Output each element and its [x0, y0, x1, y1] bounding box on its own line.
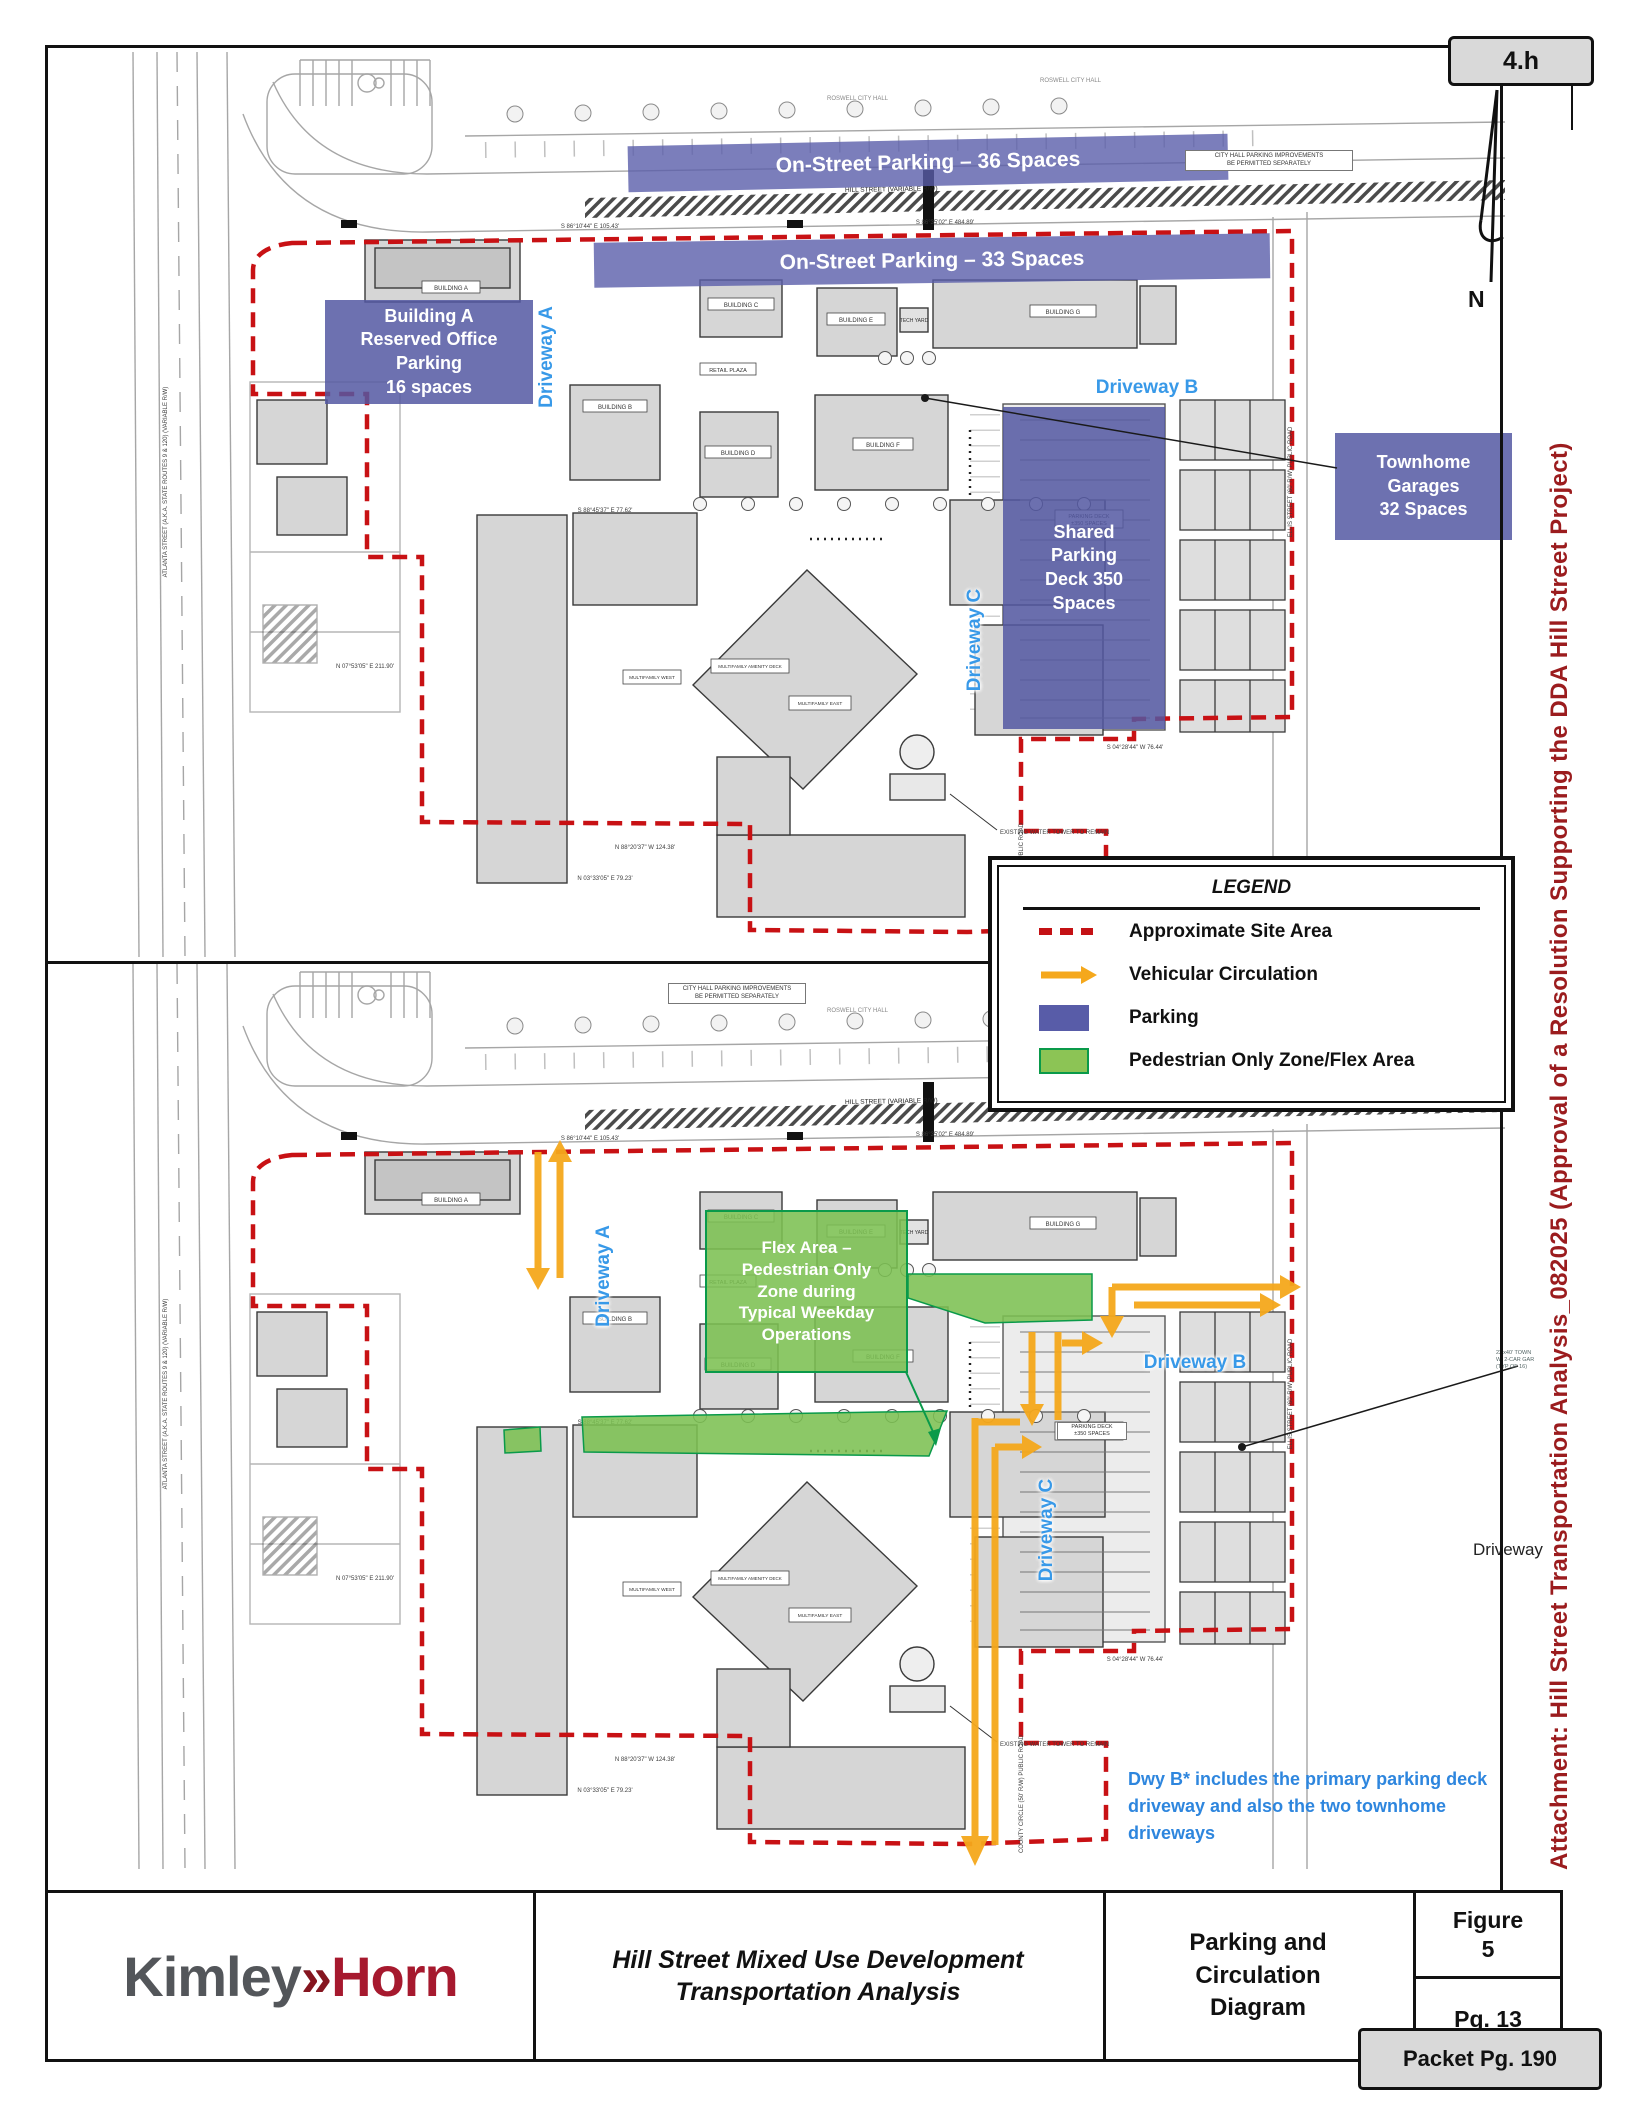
- building-e-label: BUILDING E: [839, 318, 873, 324]
- building-d-label: BUILDING D: [721, 451, 756, 457]
- building-g-label: BUILDING G: [1046, 1222, 1081, 1228]
- legend-item-site-area: Approximate Site Area: [1017, 910, 1486, 953]
- driveway-a-label-top: Driveway A: [536, 297, 560, 417]
- retail-plaza-label: RETAIL PLAZA: [709, 368, 747, 374]
- legend-item-pedestrian: Pedestrian Only Zone/Flex Area: [1017, 1039, 1486, 1082]
- attachment-sidebar-note: Attachment: Hill Street Transportation A…: [1546, 240, 1586, 1870]
- bearing-3: S 88°45'37" E 77.62': [578, 1420, 633, 1426]
- mf-east-label: MULTIFAMILY EAST: [798, 1613, 843, 1619]
- building-a-line1: Building A: [384, 305, 473, 329]
- flex-line2: Pedestrian Only: [742, 1259, 871, 1281]
- onstreet-parking-33-label: On-Street Parking – 33 Spaces: [780, 246, 1085, 274]
- ellis-street-label: ELLIS STREET (60' R/W) PUBLIC ROAD: [1288, 426, 1294, 537]
- dwy-b-note-line1: Dwy B* includes the primary parking deck: [1128, 1766, 1549, 1793]
- atlanta-street-label: ATLANTA STREET (A.K.A. STATE ROUTES 9 & …: [163, 1299, 169, 1490]
- city-hall-note-line2: BE PERMITTED SEPARATELY: [671, 994, 803, 1002]
- legend-title: LEGEND: [1023, 877, 1480, 910]
- red-dashed-line-icon: [1039, 928, 1101, 935]
- legend-label-site-area: Approximate Site Area: [1129, 921, 1332, 943]
- bearing-1: S 86°10'44" E 105.43': [561, 224, 619, 230]
- sheet-title-line2: Circulation: [1195, 1960, 1320, 1992]
- packet-page-badge: Packet Pg. 190: [1358, 2028, 1602, 2090]
- city-hall-note-line1: CITY HALL PARKING IMPROVEMENTS: [671, 986, 803, 994]
- dwy-b-note-line2: driveway and also the two townhome: [1128, 1793, 1549, 1820]
- bearing-2: S 86°35'02" E 484.89': [916, 220, 974, 226]
- onstreet-parking-33-banner: On-Street Parking – 33 Spaces: [594, 233, 1271, 287]
- legend-inner-border: LEGEND Approximate Site Area Vehicular C…: [997, 865, 1506, 1103]
- panel-divider: [45, 961, 988, 964]
- project-title-line1: Hill Street Mixed Use Development: [612, 1944, 1023, 1977]
- deck-line3: Deck 350: [1045, 568, 1123, 592]
- logo-kimley: Kimley: [123, 1945, 301, 2008]
- bearing-4: N 07°53'05" E 211.90': [336, 664, 394, 670]
- driveway-partial-label: Driveway: [1473, 1540, 1543, 1560]
- flex-line4: Typical Weekday: [739, 1302, 874, 1324]
- townhome-line3: 32 Spaces: [1379, 498, 1467, 522]
- townhome-garage-rows: [1180, 400, 1285, 732]
- parking-deck-tinybox-bottom: PARKING DECK ±350 SPACES: [1057, 1422, 1127, 1440]
- street-trees: [507, 1010, 1067, 1034]
- title-block: Kimley»Horn Hill Street Mixed Use Develo…: [45, 1890, 1563, 2062]
- bearing-6: N 03°33'05" E 79.23': [577, 876, 632, 882]
- mf-amenity-label: MULTIFAMILY AMENITY DECK: [718, 664, 781, 669]
- building-a-line2: Reserved Office: [360, 328, 497, 352]
- mf-west-label: MULTIFAMILY WEST: [629, 1587, 675, 1593]
- deck-line2: Parking: [1051, 544, 1117, 568]
- frame-top: [45, 45, 1502, 48]
- deck-line1: Shared: [1053, 521, 1114, 545]
- dwy-b-note: Dwy B* includes the primary parking deck…: [1128, 1766, 1549, 1847]
- mf-east-label: MULTIFAMILY EAST: [798, 701, 843, 707]
- roswell-city-hall-1: ROSWELL CITY HALL: [827, 96, 889, 102]
- deck-tiny-1: PARKING DECK: [1059, 1424, 1125, 1431]
- bearing-6: N 03°33'05" E 79.23': [577, 1788, 632, 1794]
- townhome-line2: Garages: [1387, 475, 1459, 499]
- frame-left: [45, 45, 48, 2062]
- logo-horn: Horn: [331, 1945, 458, 2008]
- agenda-item-tag: 4.h: [1448, 36, 1594, 86]
- flex-line5: Operations: [762, 1324, 852, 1346]
- water-tower-note: EXISTING WATER TOWER TO REMAIN: [1000, 1742, 1109, 1748]
- packet-page: BUILDING A BUILDING C BUILDING B BUILDIN…: [0, 0, 1632, 2112]
- green-swatch-icon: [1039, 1048, 1101, 1074]
- driveway-b-label-bottom: Driveway B: [1135, 1352, 1255, 1374]
- bearing-7: S 04°28'44" W 76.44': [1107, 1657, 1164, 1663]
- driveway-a-label-bottom: Driveway A: [593, 1216, 617, 1336]
- mf-west-label: MULTIFAMILY WEST: [629, 675, 675, 681]
- flex-area-box: Flex Area – Pedestrian Only Zone during …: [705, 1210, 908, 1373]
- water-tower-note: EXISTING WATER TOWER TO REMAIN: [1000, 830, 1109, 836]
- bearing-4: N 07°53'05" E 211.90': [336, 1576, 394, 1582]
- bearing-1: S 86°10'44" E 105.43': [561, 1136, 619, 1142]
- deck-line4: Spaces: [1052, 592, 1115, 616]
- sheet-title-line3: Diagram: [1210, 1992, 1306, 2024]
- figure-number: 5: [1482, 1935, 1495, 1964]
- townhome-garages-box: Townhome Garages 32 Spaces: [1335, 433, 1512, 540]
- figure-cell: Figure 5: [1413, 1893, 1563, 1976]
- legend-label-parking: Parking: [1129, 1007, 1199, 1029]
- building-a-label: BUILDING A: [434, 286, 468, 292]
- building-g-label: BUILDING G: [1046, 310, 1081, 316]
- mf-amenity-label: MULTIFAMILY AMENITY DECK: [718, 1576, 781, 1581]
- project-title-cell: Hill Street Mixed Use Development Transp…: [533, 1893, 1103, 2059]
- building-f-label: BUILDING F: [866, 443, 900, 449]
- onstreet-parking-36-label: On-Street Parking – 36 Spaces: [775, 148, 1080, 178]
- legend-box: LEGEND Approximate Site Area Vehicular C…: [988, 856, 1515, 1112]
- city-hall-note-bottom: CITY HALL PARKING IMPROVEMENTS BE PERMIT…: [668, 983, 806, 1004]
- logo-cell: Kimley»Horn: [48, 1893, 533, 2059]
- flex-line3: Zone during: [757, 1281, 855, 1303]
- county-circle-label: COUNTY CIRCLE (50' R/W) PUBLIC ROAD: [1019, 1734, 1025, 1853]
- ellis-street-label: ELLIS STREET (60' R/W) PUBLIC ROAD: [1288, 1338, 1294, 1449]
- legend-label-pedestrian: Pedestrian Only Zone/Flex Area: [1129, 1050, 1414, 1072]
- bearing-5: N 88°20'37" W 124.38': [615, 845, 675, 851]
- building-a-label: BUILDING A: [434, 1198, 468, 1204]
- roswell-city-hall-1: ROSWELL CITY HALL: [827, 1008, 889, 1014]
- townhome-line1: Townhome: [1377, 451, 1471, 475]
- deck-tiny-2: ±350 SPACES: [1059, 1431, 1125, 1438]
- bearing-2: S 86°35'02" E 484.89': [916, 1132, 974, 1138]
- blue-swatch-icon: [1039, 1005, 1101, 1031]
- shared-parking-deck-box: Shared Parking Deck 350 Spaces: [1003, 407, 1165, 729]
- building-a-line4: 16 spaces: [386, 376, 472, 400]
- bearing-7: S 04°28'44" W 76.44': [1107, 745, 1164, 751]
- street-trees: [507, 98, 1067, 122]
- flex-line1: Flex Area –: [761, 1237, 851, 1259]
- roswell-city-hall-2: ROSWELL CITY HALL: [1040, 78, 1102, 84]
- dwy-b-note-line3: driveways: [1128, 1820, 1549, 1847]
- driveway-c-label-bottom: Driveway C: [1036, 1470, 1060, 1590]
- sheet-title-line1: Parking and: [1189, 1927, 1326, 1959]
- building-a-parking-box: Building A Reserved Office Parking 16 sp…: [325, 300, 533, 404]
- yellow-arrow-icon: [1039, 964, 1101, 986]
- bearing-3: S 88°45'37" E 77.62': [578, 508, 633, 514]
- driveway-c-label-top: Driveway C: [964, 580, 988, 700]
- driveway-b-label-top: Driveway B: [1087, 377, 1207, 399]
- tech-yard-label: TECH YARD: [900, 318, 929, 324]
- project-title-line2: Transportation Analysis: [676, 1976, 961, 2009]
- city-hall-note-top: CITY HALL PARKING IMPROVEMENTS BE PERMIT…: [1185, 150, 1353, 171]
- bearing-5: N 88°20'37" W 124.38': [615, 1757, 675, 1763]
- legend-label-circulation: Vehicular Circulation: [1129, 964, 1318, 986]
- legend-item-parking: Parking: [1017, 996, 1486, 1039]
- north-label: N: [1468, 286, 1485, 313]
- logo-chevron-icon: »: [301, 1945, 331, 2008]
- kimley-horn-logo: Kimley»Horn: [123, 1944, 457, 2009]
- city-hall-note-line2: BE PERMITTED SEPARATELY: [1188, 161, 1350, 169]
- legend-item-circulation: Vehicular Circulation: [1017, 953, 1486, 996]
- figure-label: Figure: [1453, 1906, 1523, 1935]
- city-hall-note-line1: CITY HALL PARKING IMPROVEMENTS: [1188, 153, 1350, 161]
- building-c-label: BUILDING C: [724, 303, 759, 309]
- atlanta-street-label: ATLANTA STREET (A.K.A. STATE ROUTES 9 & …: [163, 387, 169, 578]
- building-a-line3: Parking: [396, 352, 462, 376]
- building-b-label: BUILDING B: [598, 405, 632, 411]
